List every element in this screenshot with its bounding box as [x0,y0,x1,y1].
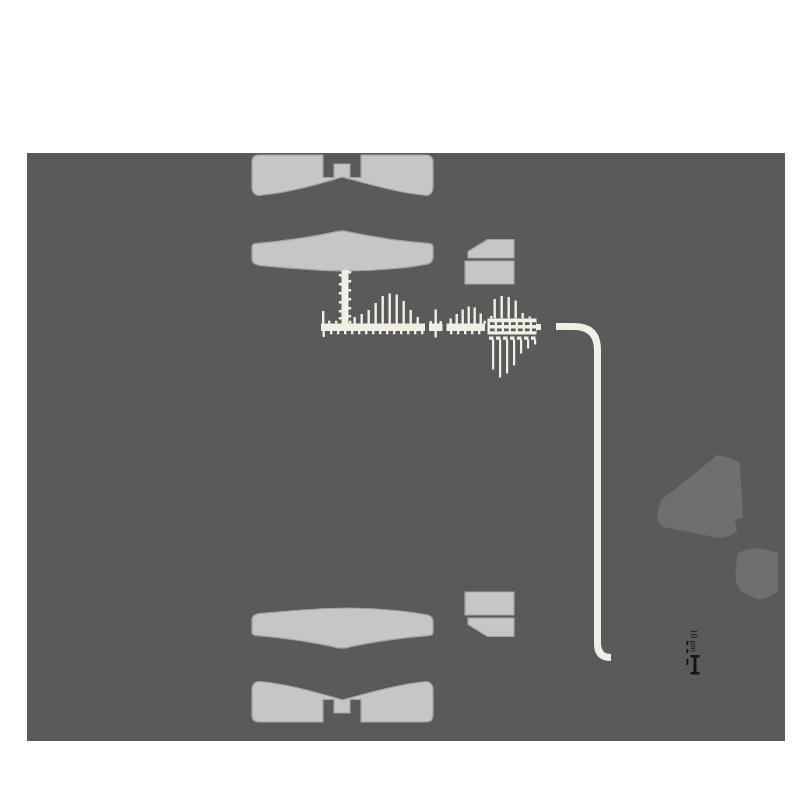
scale-annotation-text: 10 μm [689,629,699,652]
lower-side-box-body [465,592,514,615]
diagram-canvas: 10 μm [0,0,800,800]
upper-side-box-body [465,261,514,284]
figure-stage: 10 μm [0,0,800,800]
